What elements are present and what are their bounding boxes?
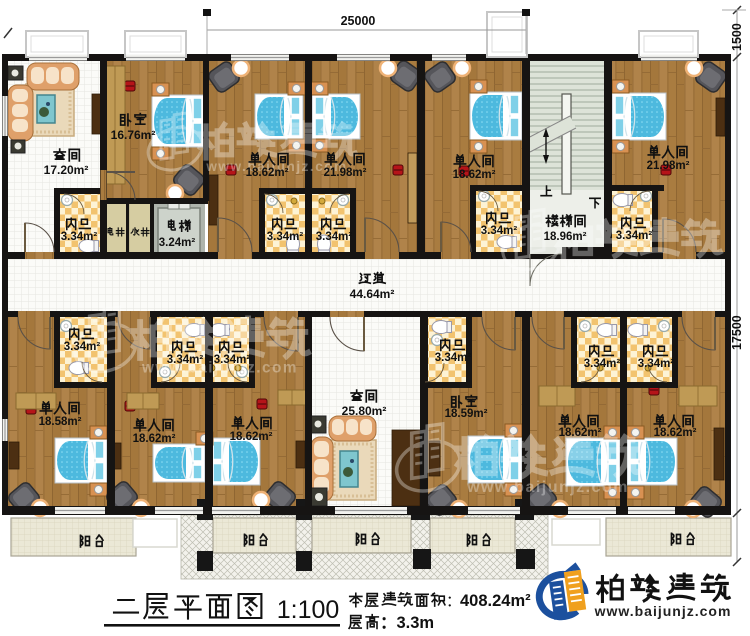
svg-text:18.62m²: 18.62m² (453, 169, 496, 181)
svg-text:3.34m²: 3.34m² (481, 225, 518, 237)
svg-text:18.58m²: 18.58m² (39, 416, 82, 428)
svg-text:18.62m²: 18.62m² (133, 433, 176, 445)
svg-text:3.34m²: 3.34m² (316, 231, 353, 243)
svg-text:3.34m²: 3.34m² (64, 341, 101, 353)
svg-text:3.34m²: 3.34m² (61, 231, 98, 243)
svg-text:18.96m²: 18.96m² (544, 231, 587, 243)
svg-text:16.76m²: 16.76m² (111, 128, 156, 142)
svg-text:3.34m²: 3.34m² (435, 352, 472, 364)
svg-text:25000: 25000 (341, 14, 376, 28)
svg-text:3.34m²: 3.34m² (616, 230, 653, 242)
svg-text:3.34m²: 3.34m² (584, 358, 621, 370)
svg-text:17.20m²: 17.20m² (44, 163, 89, 177)
svg-text:18.59m²: 18.59m² (445, 408, 488, 420)
svg-text:25.80m²: 25.80m² (342, 404, 387, 418)
svg-text:3.34m²: 3.34m² (167, 354, 204, 366)
svg-text:3.34m²: 3.34m² (214, 354, 251, 366)
svg-text:21.98m²: 21.98m² (324, 167, 367, 179)
svg-text:3.34m²: 3.34m² (638, 358, 675, 370)
svg-text:18.62m²: 18.62m² (230, 431, 273, 443)
svg-text:：3.3m: ：3.3m (380, 614, 434, 632)
svg-text:3.34m²: 3.34m² (267, 231, 304, 243)
svg-text:：: ： (446, 593, 461, 610)
svg-text:21.98m²: 21.98m² (647, 160, 690, 172)
svg-text:18.62m²: 18.62m² (246, 167, 289, 179)
svg-text:44.64m²: 44.64m² (350, 287, 395, 301)
svg-text:www.baijunjz.com: www.baijunjz.com (466, 479, 629, 496)
svg-text:408.24m²: 408.24m² (460, 592, 531, 610)
svg-text:www.baijunjz.com: www.baijunjz.com (563, 258, 711, 274)
svg-text:1:100: 1:100 (277, 596, 340, 624)
svg-text:3.24m²: 3.24m² (159, 237, 196, 249)
svg-text:18.62m²: 18.62m² (654, 427, 697, 439)
svg-text:www.baijunjz.com: www.baijunjz.com (594, 603, 732, 619)
svg-text:1500: 1500 (730, 23, 744, 51)
svg-text:17500: 17500 (730, 315, 744, 350)
svg-text:18.62m²: 18.62m² (559, 427, 602, 439)
